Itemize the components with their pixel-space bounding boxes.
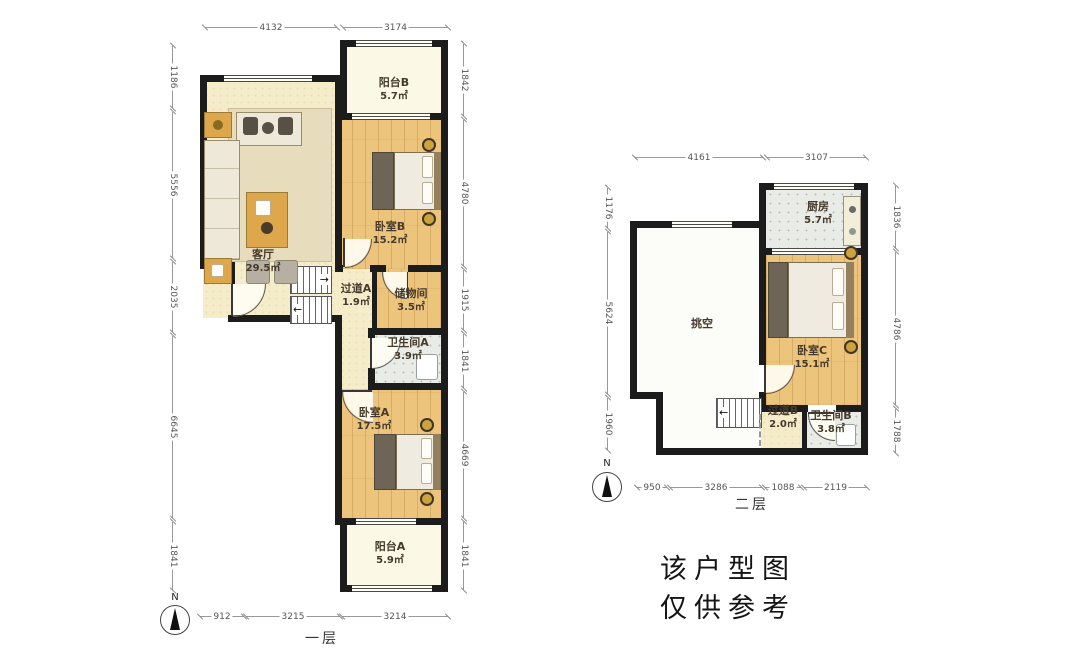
hallway-b-dashed-boundary bbox=[759, 414, 761, 446]
room-area: 17.5㎡ bbox=[357, 420, 392, 433]
dim-bottom: 3215 bbox=[246, 616, 340, 617]
room-name: 挑空 bbox=[691, 317, 713, 330]
wall-segment bbox=[630, 221, 637, 399]
stair-arrow-right-icon: → bbox=[319, 274, 330, 285]
label-bedroom-c: 卧室C 15.1㎡ bbox=[795, 344, 830, 371]
dim-left: 5556 bbox=[172, 112, 173, 258]
dim-left: 1186 bbox=[172, 46, 173, 108]
stairs-flight: ← bbox=[716, 398, 762, 428]
dim-left: 1841 bbox=[172, 522, 173, 590]
disclaimer-note: 该户型图 仅供参考 bbox=[633, 550, 823, 628]
dim-top: 3107 bbox=[767, 157, 866, 158]
bedroom-b-wardrobe bbox=[372, 152, 394, 210]
bedroom-b-nightstand bbox=[422, 138, 436, 152]
wall-segment bbox=[656, 448, 868, 455]
label-bedroom-b: 卧室B 15.2㎡ bbox=[373, 220, 408, 247]
room-name: 过道B bbox=[768, 404, 798, 417]
room-name: 客厅 bbox=[252, 248, 274, 261]
dim-bottom: 950 bbox=[637, 487, 667, 488]
dim-left: 2035 bbox=[172, 262, 173, 332]
room-name: 卧室B bbox=[375, 220, 405, 233]
label-balcony-a: 阳台A 5.9㎡ bbox=[375, 540, 406, 567]
label-hallway-a: 过道A 1.9㎡ bbox=[341, 282, 372, 309]
kitchen-burner bbox=[849, 206, 856, 213]
wall-segment bbox=[656, 392, 663, 455]
window bbox=[356, 518, 416, 525]
dim-bottom: 912 bbox=[200, 616, 244, 617]
dim-right: 1842 bbox=[463, 44, 464, 116]
dim-left: 1176 bbox=[607, 188, 608, 228]
label-living: 客厅 29.5㎡ bbox=[246, 248, 281, 275]
compass-needle bbox=[170, 608, 180, 630]
floorplan-canvas: → ← 阳台B 5.7㎡ 卧室B 15.2㎡ 客厅 29.5㎡ 过道A bbox=[0, 0, 1075, 659]
room-area: 3.5㎡ bbox=[395, 301, 428, 314]
label-bedroom-a: 卧室A 17.5㎡ bbox=[357, 406, 392, 433]
dim-right: 1788 bbox=[895, 409, 896, 453]
bedroom-c-pillow bbox=[832, 302, 844, 330]
dim-right: 1836 bbox=[895, 186, 896, 248]
dim-bottom: 3214 bbox=[342, 616, 448, 617]
room-area: 5.7㎡ bbox=[379, 90, 409, 103]
bedroom-b-pillow bbox=[422, 182, 433, 204]
room-area: 3.9㎡ bbox=[387, 350, 429, 363]
kitchen-counter bbox=[843, 196, 861, 246]
wall-segment bbox=[370, 265, 386, 272]
compass-needle bbox=[602, 475, 612, 497]
stair-arrow-left-icon: ← bbox=[718, 407, 729, 418]
label-bath-a: 卫生间A 3.9㎡ bbox=[387, 336, 429, 363]
side-table-decor bbox=[213, 120, 223, 130]
room-floor-void bbox=[637, 228, 759, 399]
bedroom-c-nightstand bbox=[844, 340, 858, 354]
wall-segment bbox=[335, 315, 342, 518]
room-area: 1.9㎡ bbox=[341, 296, 372, 309]
room-name: 卧室A bbox=[359, 406, 390, 419]
dim-top: 4161 bbox=[635, 157, 763, 158]
coffee-table-tray bbox=[255, 200, 271, 216]
dim-right: 4786 bbox=[895, 252, 896, 405]
bedroom-a-wardrobe bbox=[374, 434, 396, 490]
dim-bottom: 3286 bbox=[670, 487, 762, 488]
dim-left: 5624 bbox=[607, 232, 608, 394]
bedroom-a-pillow bbox=[421, 463, 432, 484]
room-area: 15.1㎡ bbox=[795, 358, 830, 371]
room-area: 15.2㎡ bbox=[373, 234, 408, 247]
bedroom-c-headboard bbox=[846, 262, 854, 338]
label-hallway-b: 过道B 2.0㎡ bbox=[768, 404, 798, 431]
dim-right: 4669 bbox=[463, 392, 464, 518]
coffee-table-decor bbox=[261, 222, 273, 234]
dim-right: 1841 bbox=[463, 522, 464, 590]
window bbox=[672, 221, 732, 228]
dim-top: 3174 bbox=[343, 27, 448, 28]
dim-left: 1960 bbox=[607, 398, 608, 450]
window bbox=[772, 248, 854, 255]
north-label: N bbox=[160, 592, 190, 603]
wall-segment bbox=[441, 40, 448, 592]
floor1-title: 一层 bbox=[305, 628, 339, 648]
wall-segment bbox=[368, 368, 375, 390]
bedroom-a-headboard bbox=[433, 434, 440, 490]
wall-segment bbox=[368, 383, 448, 390]
dim-bottom: 1088 bbox=[765, 487, 801, 488]
dim-right: 1915 bbox=[463, 270, 464, 330]
loveseat-table bbox=[262, 122, 274, 134]
window bbox=[352, 113, 430, 120]
dim-bottom: 2119 bbox=[804, 487, 867, 488]
room-area: 3.8㎡ bbox=[810, 423, 851, 436]
stair-arrow-left-icon: ← bbox=[292, 304, 303, 315]
dim-left: 6645 bbox=[172, 336, 173, 518]
dim-right: 4780 bbox=[463, 120, 464, 266]
loveseat-cushion bbox=[243, 117, 258, 135]
bedroom-c-nightstand bbox=[844, 246, 858, 260]
room-name: 厨房 bbox=[807, 200, 829, 213]
window bbox=[356, 40, 432, 47]
wall-segment bbox=[802, 412, 807, 448]
bedroom-b-pillow bbox=[422, 156, 433, 178]
note-line1: 该户型图 bbox=[633, 550, 823, 589]
room-area: 29.5㎡ bbox=[246, 262, 281, 275]
room-name: 阳台A bbox=[375, 540, 406, 553]
side-table-decor bbox=[211, 264, 224, 277]
bedroom-c-wardrobe bbox=[768, 262, 788, 338]
label-bath-b: 卫生间B 3.8㎡ bbox=[810, 409, 851, 436]
dim-right: 1841 bbox=[463, 334, 464, 388]
label-storage: 储物间 3.5㎡ bbox=[395, 287, 428, 314]
bedroom-a-nightstand bbox=[420, 492, 434, 506]
bedroom-c-pillow bbox=[832, 268, 844, 296]
note-line2: 仅供参考 bbox=[633, 589, 823, 628]
wall-segment bbox=[340, 40, 347, 120]
room-name: 卧室C bbox=[797, 344, 827, 357]
window bbox=[352, 585, 432, 592]
wall-segment bbox=[368, 328, 448, 335]
stairs-flight-down: ← bbox=[290, 296, 332, 324]
room-area: 5.7㎡ bbox=[804, 214, 832, 227]
dim-top: 4132 bbox=[205, 27, 337, 28]
room-name: 卫生间B bbox=[810, 409, 851, 422]
label-kitchen: 厨房 5.7㎡ bbox=[804, 200, 832, 227]
window bbox=[774, 183, 854, 190]
sofa bbox=[204, 140, 240, 260]
window bbox=[224, 75, 312, 82]
wall-segment bbox=[372, 272, 377, 332]
bedroom-a-pillow bbox=[421, 438, 432, 459]
compass-icon bbox=[592, 472, 622, 502]
room-name: 阳台B bbox=[379, 76, 409, 89]
room-area: 2.0㎡ bbox=[768, 418, 798, 431]
north-label: N bbox=[592, 458, 622, 469]
floor2-title: 二层 bbox=[735, 494, 769, 514]
room-area: 5.9㎡ bbox=[375, 554, 406, 567]
loveseat-cushion bbox=[278, 117, 293, 135]
bedroom-b-headboard bbox=[434, 152, 441, 210]
kitchen-sink bbox=[849, 228, 856, 235]
wall-segment bbox=[861, 183, 868, 455]
bedroom-a-nightstand bbox=[420, 418, 434, 432]
room-name: 储物间 bbox=[395, 287, 428, 300]
wall-segment bbox=[340, 518, 347, 592]
label-void: 挑空 bbox=[691, 317, 713, 331]
bedroom-b-nightstand bbox=[422, 212, 436, 226]
room-name: 过道A bbox=[341, 282, 372, 295]
room-name: 卫生间A bbox=[387, 336, 429, 349]
compass-icon bbox=[160, 605, 190, 635]
wall-segment bbox=[759, 183, 766, 365]
label-balcony-b: 阳台B 5.7㎡ bbox=[379, 76, 409, 103]
